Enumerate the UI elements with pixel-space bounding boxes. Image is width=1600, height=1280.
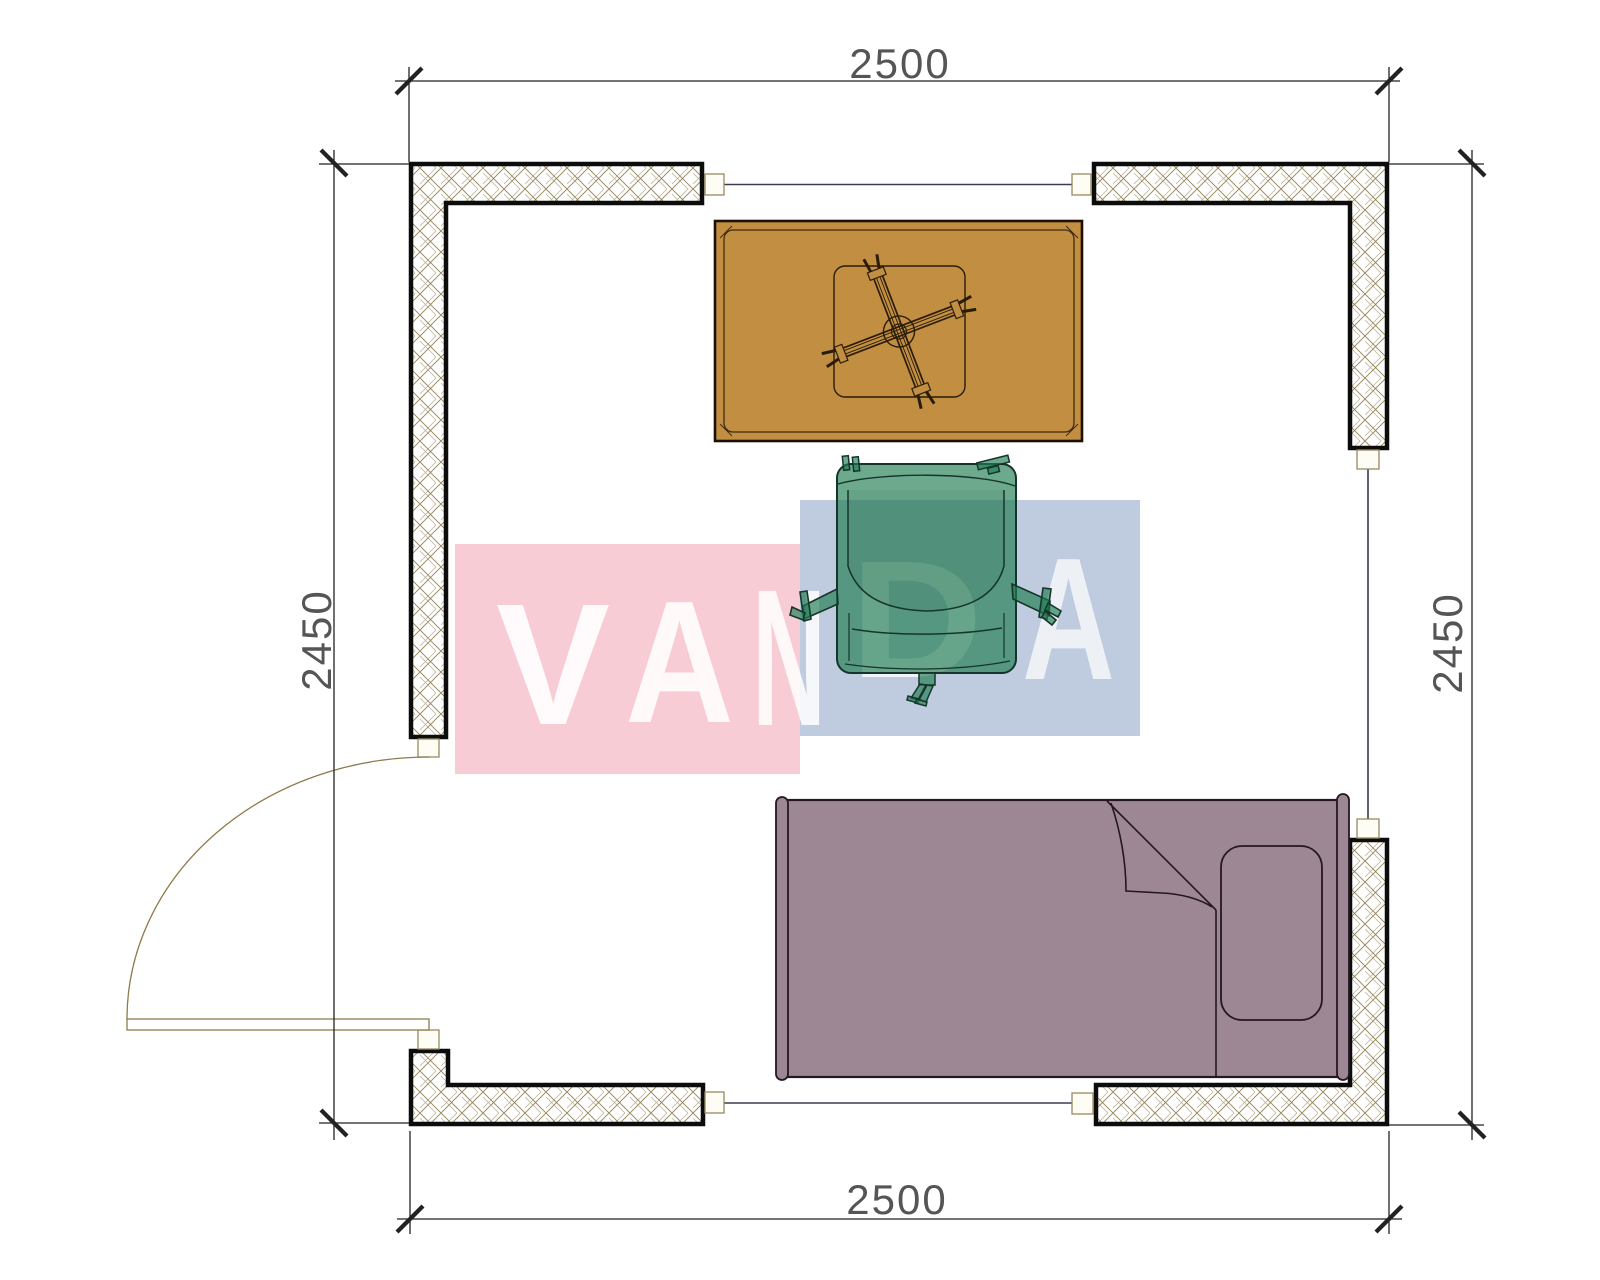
svg-text:A: A — [1022, 521, 1115, 716]
svg-text:2500: 2500 — [846, 1176, 947, 1223]
svg-text:V: V — [496, 567, 610, 761]
svg-text:2450: 2450 — [1424, 592, 1471, 693]
svg-text:N: N — [752, 549, 826, 767]
svg-text:A: A — [625, 564, 734, 759]
svg-text:2450: 2450 — [293, 589, 340, 690]
svg-text:2500: 2500 — [849, 40, 950, 87]
